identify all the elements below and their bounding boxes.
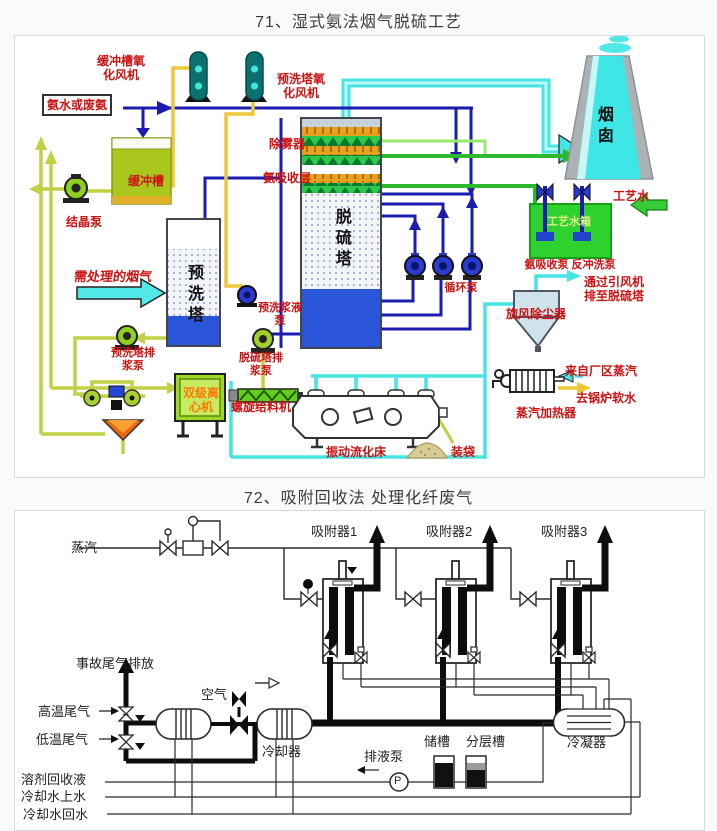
layer-tank-label: 分层槽 <box>466 734 505 749</box>
cooler-2 <box>257 709 312 739</box>
hot-tail-gas-label: 高温尾气 <box>38 704 90 719</box>
cyclone-label: 旋风除尘器 <box>504 307 568 321</box>
chimney-label: 烟囱 <box>593 98 612 156</box>
cw-supply-label: 冷却水上水 <box>21 789 86 804</box>
prewash-slurry-pump <box>237 286 257 307</box>
adsorber-2 <box>436 525 498 723</box>
page: 71、湿式氨法烟气脱硫工艺 <box>0 0 717 831</box>
circulation-pump-label: 循环泵 <box>437 282 485 295</box>
steam-label: 蒸汽 <box>71 540 97 555</box>
steam-from-plant-label: 来自厂区蒸汽 <box>561 364 641 378</box>
bagging-label: 装袋 <box>449 445 477 459</box>
oxidation-fan-1 <box>185 52 211 102</box>
buffer-tank-label: 缓冲槽 <box>122 174 170 188</box>
storage-tank <box>434 756 454 788</box>
diagram2-title: 72、吸附回收法 处理化纤废气 <box>0 484 717 508</box>
air-label: 空气 <box>201 687 227 702</box>
fluidized-bed-label: 振动流化床 <box>324 445 388 459</box>
circulation-pumps <box>405 253 482 280</box>
adsorber1-label: 吸附器1 <box>311 524 357 539</box>
flow-marker-icon <box>347 567 357 574</box>
steam-heater <box>493 370 564 392</box>
cw-return-label: 冷却水回水 <box>23 807 88 822</box>
tank-pumps-label: 氨吸收泵 反冲洗泵 <box>515 259 625 272</box>
desulf-discharge-pump <box>251 329 275 353</box>
adsorber2-label: 吸附器2 <box>426 524 472 539</box>
desulf-discharge-pump-label: 脱硫塔排浆泵 <box>239 352 283 378</box>
to-desulf-label: 通过引风机排至脱硫塔 <box>583 275 645 303</box>
buffer-fan-label: 缓冲槽氧化风机 <box>93 54 149 82</box>
condenser <box>554 709 625 736</box>
demister-label: 除雾器 <box>263 137 311 151</box>
blower-pump <box>211 715 257 735</box>
fluidized-bed <box>293 390 447 447</box>
to-boiler-label: 去锅炉软水 <box>574 391 638 405</box>
prewash-fan-label: 预洗塔氧化风机 <box>273 72 329 100</box>
adsorber-1 <box>323 525 385 723</box>
condenser-label: 冷凝器 <box>567 735 606 750</box>
storage-tank-label: 储槽 <box>424 734 450 749</box>
prewash-tower-label: 预洗塔 <box>183 254 202 336</box>
layer-tank <box>466 756 486 788</box>
diagram1-title: 71、湿式氨法烟气脱硫工艺 <box>0 8 717 32</box>
hydrocyclone-unit <box>80 382 145 440</box>
flue-gas-in-label: 需处理的烟气 <box>64 269 162 284</box>
ammonia-feed-label: 氨水或废氨 <box>42 94 112 116</box>
steam-heater-label: 蒸汽加热器 <box>514 406 578 420</box>
process-water-tank-label: 工艺水箱 <box>539 216 599 229</box>
diagram1-panel: 缓冲槽氧化风机 氨水或废氨 预洗塔氧化风机 除雾器 氨吸收层 缓冲槽 结晶泵 需… <box>14 35 705 478</box>
drain-pump-label: 排液泵 <box>364 749 403 764</box>
diagram2-panel: 蒸汽 吸附器1 吸附器2 吸附器3 事故尾气排放 空气 高温尾气 低温尾气 溶剂… <box>14 510 705 831</box>
collection-lines <box>343 663 609 709</box>
adsorber3-label: 吸附器3 <box>541 524 587 539</box>
process-water-tank <box>530 204 611 258</box>
prewash-discharge-pump-label: 预洗塔排浆泵 <box>111 347 155 373</box>
crystal-pump-label: 结晶泵 <box>60 215 108 229</box>
adsorber-3 <box>551 525 613 723</box>
solvent-recovery-label: 溶剂回收液 <box>21 772 86 787</box>
process-water-label: 工艺水 <box>607 189 655 203</box>
buffer-tank <box>112 138 171 204</box>
oxidation-fan-2 <box>241 52 267 102</box>
centrifuge-label: 双级离心机 <box>179 386 223 414</box>
screw-feeder-label: 螺旋给料机 <box>229 400 293 414</box>
cyclone-dust-collector <box>514 291 559 352</box>
cooler-1 <box>156 709 211 739</box>
crystal-pump <box>63 174 89 203</box>
absorb-layer-label: 氨吸收层 <box>255 171 319 185</box>
desulf-tower-label: 脱硫塔 <box>331 198 350 280</box>
tail-gas-valves <box>99 707 145 750</box>
accident-vent-label: 事故尾气排放 <box>76 656 154 671</box>
cold-tail-gas-label: 低温尾气 <box>36 732 88 747</box>
cooler-label: 冷却器 <box>262 744 301 759</box>
prewash-slurry-pump-label: 预洗浆液泵 <box>258 302 302 328</box>
pump-symbol-label: P <box>394 775 401 788</box>
